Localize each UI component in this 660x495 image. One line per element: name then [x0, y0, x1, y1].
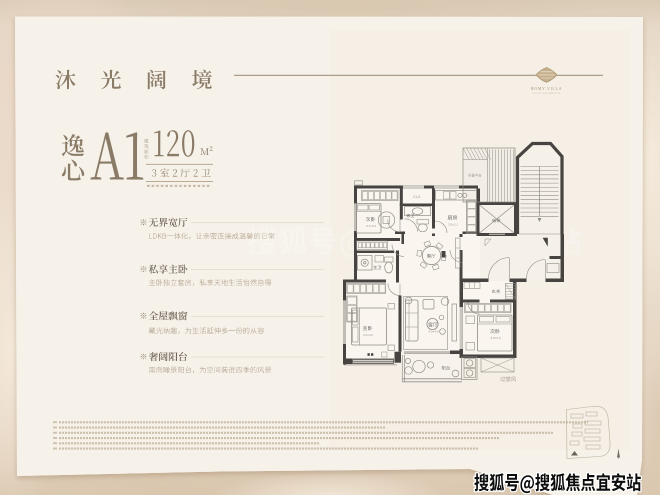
svg-text:3.0×3.3: 3.0×3.3	[491, 336, 501, 340]
svg-text:3.3×2.1: 3.3×2.1	[448, 223, 458, 227]
svg-text:4.0×4.6: 4.0×4.6	[429, 330, 439, 334]
svg-text:ROMY VILLA: ROMY VILLA	[531, 86, 562, 91]
svg-text:3.1×3.6: 3.1×3.6	[366, 224, 376, 228]
svg-text:3.4×4.0: 3.4×4.0	[363, 333, 373, 337]
svg-text:LIGHT RESIDENCE: LIGHT RESIDENCE	[532, 92, 560, 95]
svg-text:C1-S: C1-S	[413, 195, 420, 199]
